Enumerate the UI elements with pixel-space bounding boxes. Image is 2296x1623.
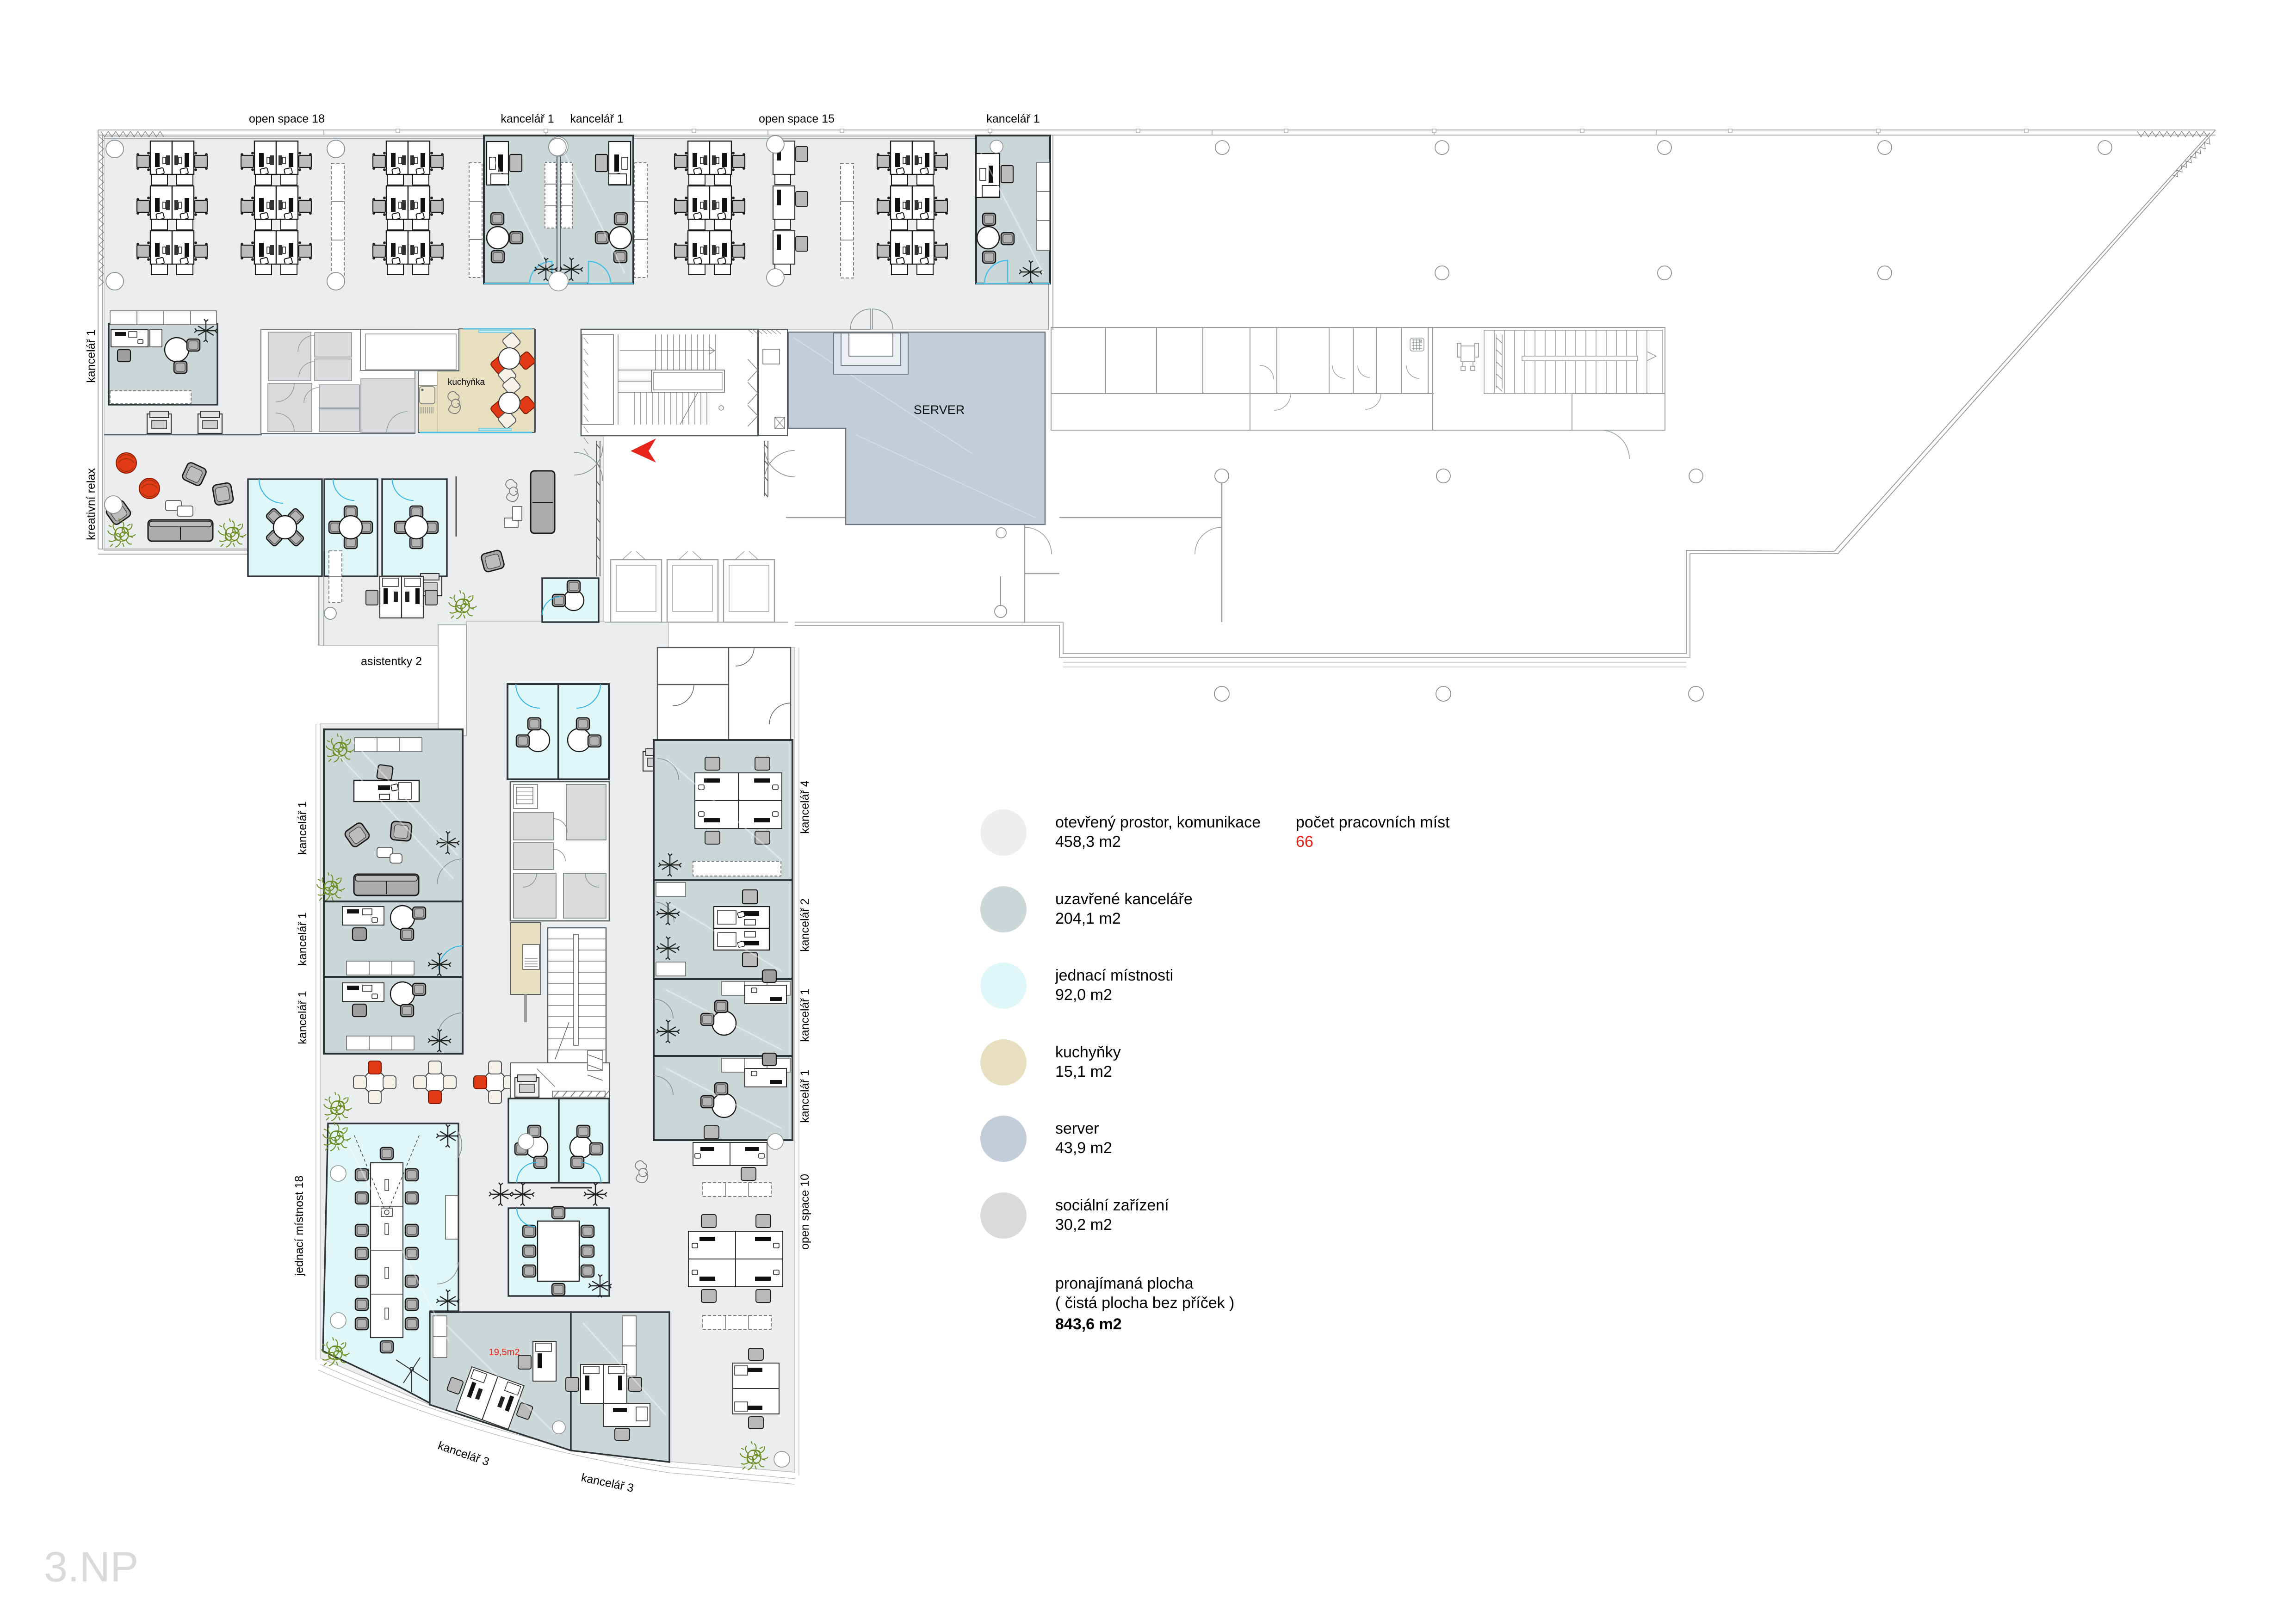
svg-text:kancelář 1: kancelář 1 bbox=[296, 991, 309, 1044]
svg-text:kancelář 4: kancelář 4 bbox=[798, 780, 811, 833]
svg-text:kancelář 1: kancelář 1 bbox=[798, 988, 811, 1042]
svg-text:kuchyňka: kuchyňka bbox=[448, 377, 485, 387]
svg-text:92,0 m2: 92,0 m2 bbox=[1055, 986, 1112, 1004]
svg-text:458,3 m2: 458,3 m2 bbox=[1055, 833, 1121, 851]
svg-text:43,9 m2: 43,9 m2 bbox=[1055, 1139, 1112, 1157]
svg-text:kancelář 1: kancelář 1 bbox=[986, 112, 1040, 125]
svg-text:kancelář 2: kancelář 2 bbox=[798, 898, 811, 951]
svg-text:kancelář 1: kancelář 1 bbox=[798, 1069, 811, 1123]
svg-text:open space 10: open space 10 bbox=[798, 1174, 811, 1250]
svg-text:počet pracovních míst: počet pracovních míst bbox=[1296, 814, 1450, 831]
svg-text:SERVER: SERVER bbox=[914, 403, 965, 417]
svg-text:30,2 m2: 30,2 m2 bbox=[1055, 1216, 1112, 1234]
svg-text:15,1 m2: 15,1 m2 bbox=[1055, 1063, 1112, 1080]
svg-text:204,1 m2: 204,1 m2 bbox=[1055, 910, 1121, 927]
svg-text:jednací místnost 18: jednací místnost 18 bbox=[293, 1176, 306, 1277]
svg-text:server: server bbox=[1055, 1120, 1099, 1137]
svg-text:otevřený prostor, komunikace: otevřený prostor, komunikace bbox=[1055, 814, 1261, 831]
svg-text:open space 18: open space 18 bbox=[249, 112, 325, 125]
svg-text:kancelář 1: kancelář 1 bbox=[501, 112, 554, 125]
svg-text:kancelář 1: kancelář 1 bbox=[85, 329, 98, 383]
svg-text:kancelář 1: kancelář 1 bbox=[296, 801, 309, 854]
svg-text:jednací místnosti: jednací místnosti bbox=[1055, 967, 1173, 984]
svg-text:asistentky 2: asistentky 2 bbox=[361, 655, 422, 668]
svg-text:open space 15: open space 15 bbox=[759, 112, 835, 125]
svg-text:sociální zařízení: sociální zařízení bbox=[1055, 1197, 1169, 1214]
svg-text:kuchyňky: kuchyňky bbox=[1055, 1043, 1121, 1061]
svg-text:kancelář 1: kancelář 1 bbox=[296, 912, 309, 965]
svg-text:843,6 m2: 843,6 m2 bbox=[1055, 1315, 1122, 1333]
svg-text:3.NP: 3.NP bbox=[44, 1543, 139, 1591]
svg-text:66: 66 bbox=[1296, 833, 1313, 851]
svg-text:( čistá plocha bez příček ): ( čistá plocha bez příček ) bbox=[1055, 1294, 1234, 1312]
svg-text:uzavřené kanceláře: uzavřené kanceláře bbox=[1055, 890, 1193, 908]
svg-text:kancelář 1: kancelář 1 bbox=[570, 112, 623, 125]
svg-text:19,5m2: 19,5m2 bbox=[489, 1347, 520, 1358]
svg-text:kreativní relax: kreativní relax bbox=[85, 468, 98, 540]
svg-text:pronajímaná plocha: pronajímaná plocha bbox=[1055, 1275, 1194, 1292]
